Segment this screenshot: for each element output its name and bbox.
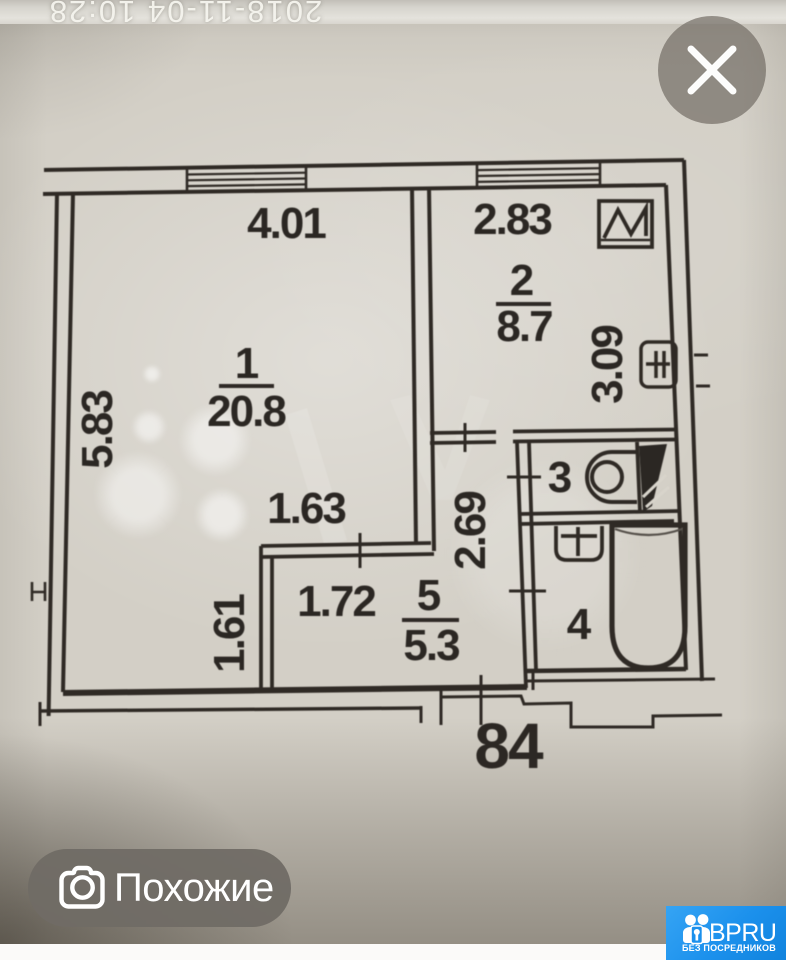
svg-text:1.63: 1.63 (267, 484, 345, 533)
svg-text:2.83: 2.83 (473, 195, 551, 244)
svg-text:1.72: 1.72 (297, 577, 375, 626)
svg-text:4.01: 4.01 (247, 199, 326, 248)
svg-text:5: 5 (417, 571, 441, 620)
svg-text:3: 3 (548, 453, 571, 502)
svg-text:1: 1 (235, 339, 259, 388)
svg-text:3.09: 3.09 (583, 326, 632, 404)
svg-text:20.8: 20.8 (207, 387, 286, 436)
svg-text:5.3: 5.3 (403, 621, 459, 670)
svg-text:8.7: 8.7 (496, 302, 552, 351)
svg-text:5.83: 5.83 (73, 391, 122, 469)
svg-text:84: 84 (474, 710, 544, 782)
svg-text:1.61: 1.61 (205, 594, 254, 673)
svg-text:2: 2 (510, 256, 533, 305)
svg-text:2.69: 2.69 (446, 492, 495, 570)
svg-text:4: 4 (567, 600, 592, 649)
